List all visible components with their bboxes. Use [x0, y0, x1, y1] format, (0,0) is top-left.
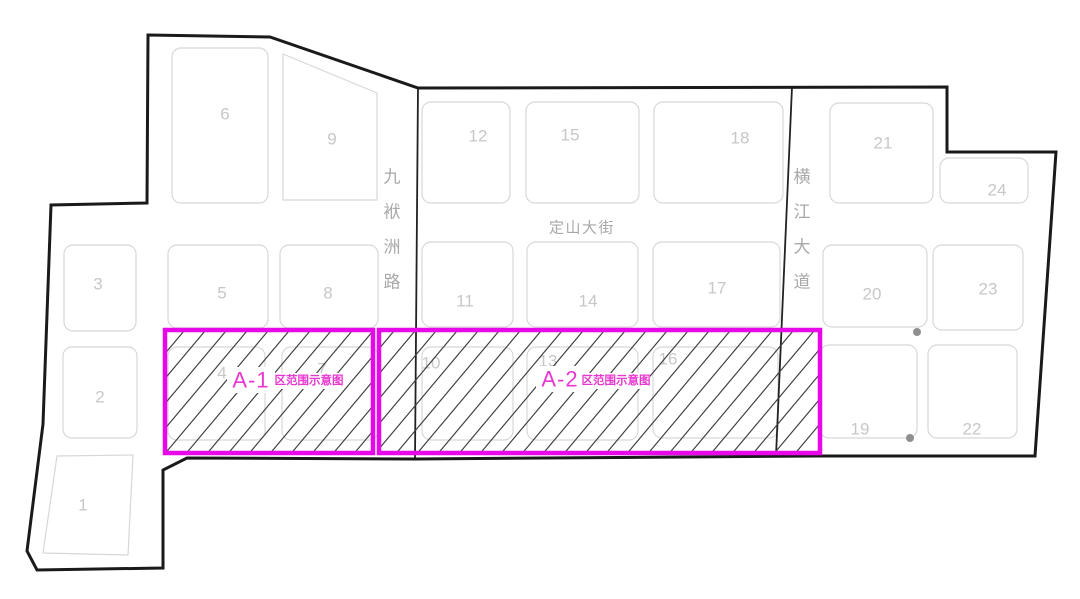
- parcel-18: 18: [654, 102, 783, 203]
- parcel-17-number: 17: [708, 279, 727, 298]
- parcel-2: 2: [63, 347, 137, 438]
- parcel-21-shape: [830, 103, 933, 203]
- parcel-15: 15: [526, 102, 639, 203]
- street-label-jiufuzhou-road-char: 九: [384, 168, 401, 187]
- parcel-8-number: 8: [323, 284, 332, 303]
- street-label-hengjiang-avenue-char: 江: [794, 203, 811, 222]
- street-label-hengjiang-avenue: 横江大道: [794, 168, 811, 292]
- parcel-24-number: 24: [988, 181, 1007, 200]
- site-boundary-outline: [27, 35, 1056, 570]
- parcel-1: 1: [43, 455, 133, 555]
- parcel-11: 11: [422, 242, 513, 327]
- zone-A-2: A-2区范围示意图: [379, 330, 820, 453]
- parcel-5-number: 5: [217, 284, 226, 303]
- street-label-jiufuzhou-road: 九袱洲路: [384, 168, 401, 292]
- zone-A-2-label: A-2: [541, 367, 578, 392]
- parcel-21: 21: [830, 103, 933, 203]
- parcel-20: 20: [823, 245, 927, 327]
- parcel-17: 17: [653, 242, 780, 327]
- street-label-dingshan-street-text: 定山大街: [549, 220, 615, 237]
- parcel-14-shape: [527, 242, 638, 327]
- parcel-12-shape: [422, 102, 510, 203]
- parcel-1-shape: [43, 455, 133, 555]
- parcel-1-number: 1: [78, 496, 87, 515]
- site-plan-page: 123456789101112131415161718192021222324九…: [0, 0, 1080, 599]
- parcel-18-shape: [654, 102, 783, 203]
- parcel-11-shape: [422, 242, 513, 327]
- parcel-23: 23: [933, 245, 1023, 330]
- parcel-3: 3: [64, 245, 136, 331]
- zone-A-2-hatch-fill: [379, 330, 820, 453]
- zone-A-2-sublabel: 区范围示意图: [582, 373, 651, 387]
- parcel-9-number: 9: [327, 130, 336, 149]
- parcel-15-number: 15: [561, 126, 580, 145]
- street-label-dingshan-street: 定山大街: [549, 220, 615, 237]
- parcel-11-number: 11: [456, 292, 474, 311]
- parcel-23-number: 23: [979, 280, 998, 299]
- survey-dot-1: [913, 328, 921, 336]
- street-label-hengjiang-avenue-char: 横: [794, 168, 811, 187]
- parcel-22: 22: [928, 345, 1017, 439]
- parcel-24: 24: [940, 158, 1028, 203]
- street-label-hengjiang-avenue-char: 道: [794, 273, 811, 292]
- parcel-21-number: 21: [874, 134, 893, 153]
- zone-A-1-sublabel: 区范围示意图: [275, 373, 344, 387]
- parcel-8: 8: [280, 245, 378, 328]
- parcel-20-number: 20: [863, 285, 882, 304]
- parcel-12: 12: [422, 102, 510, 203]
- zone-A-1-label: A-1: [232, 368, 269, 393]
- parcel-14: 14: [527, 242, 638, 327]
- street-label-jiufuzhou-road-char: 洲: [384, 238, 401, 257]
- parcel-19-number: 19: [851, 420, 870, 439]
- parcel-14-number: 14: [579, 292, 598, 311]
- parcel-3-number: 3: [93, 275, 102, 294]
- parcel-12-number: 12: [469, 127, 488, 146]
- site-plan-map: 123456789101112131415161718192021222324九…: [0, 0, 1080, 599]
- street-label-layer: 九袱洲路定山大街横江大道: [384, 168, 811, 292]
- parcel-19: 19: [820, 345, 917, 439]
- zone-layer: A-1区范围示意图A-2区范围示意图: [165, 330, 820, 453]
- zone-A-1: A-1区范围示意图: [165, 330, 373, 453]
- parcel-18-number: 18: [731, 129, 750, 148]
- parcel-6-shape: [172, 48, 268, 203]
- parcel-6: 6: [172, 48, 268, 203]
- parcel-6-number: 6: [220, 105, 229, 124]
- parcel-24-shape: [940, 158, 1028, 203]
- street-label-jiufuzhou-road-char: 袱: [384, 203, 401, 222]
- street-label-jiufuzhou-road-char: 路: [384, 273, 401, 292]
- parcel-22-number: 22: [963, 420, 982, 439]
- parcel-2-number: 2: [95, 388, 104, 407]
- survey-dot-2: [906, 434, 914, 442]
- parcel-layer: 123456789101112131415161718192021222324: [43, 48, 1028, 555]
- parcel-9: 9: [283, 54, 377, 200]
- parcel-15-shape: [526, 102, 639, 203]
- parcel-5: 5: [168, 245, 268, 328]
- parcel-9-shape: [283, 54, 377, 200]
- street-label-hengjiang-avenue-char: 大: [794, 238, 811, 257]
